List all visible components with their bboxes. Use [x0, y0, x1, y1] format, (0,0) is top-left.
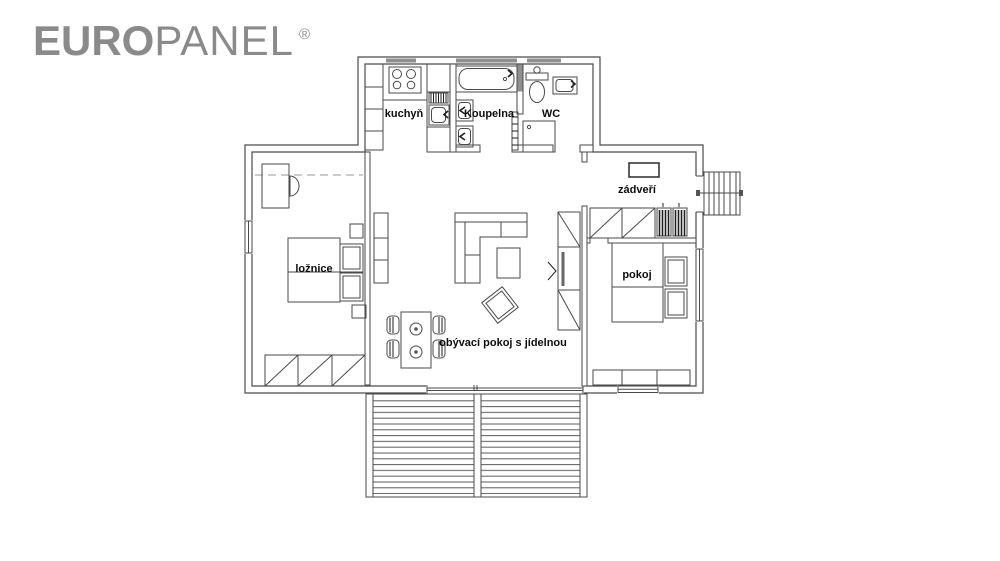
desk-chair [290, 176, 299, 196]
kitchen-window [386, 59, 416, 63]
room-south-window [617, 385, 659, 394]
hallway-wardrobe [590, 208, 655, 238]
kitchen-sink-unit [427, 92, 450, 152]
room-label-kuchyn: kuchyň [385, 108, 424, 120]
bedroom-west-window [244, 220, 253, 254]
bedroom: ložnice [255, 164, 366, 386]
coffee-table [497, 248, 520, 278]
dryer [673, 203, 687, 236]
washing-machine [657, 203, 671, 236]
nightstand [350, 224, 363, 238]
bookshelf [374, 213, 388, 283]
living-room: obývací pokoj s jídelnou [374, 212, 580, 368]
desk [262, 164, 299, 208]
terrace-post [580, 394, 587, 497]
wc-room: WC [523, 67, 577, 152]
chair [433, 316, 445, 334]
room-label-koupelna: Koupelna [464, 108, 515, 120]
double-bed [612, 243, 687, 322]
bathroom: Koupelna [456, 66, 518, 150]
bedroom-wardrobe [265, 355, 365, 386]
bathtub [456, 66, 517, 92]
room-label-zadveri: zádveří [618, 184, 657, 196]
room-label-wc: WC [542, 108, 560, 120]
room-pokoj: pokoj [593, 243, 690, 385]
armchair [482, 287, 518, 323]
room-east-window [695, 248, 704, 322]
chair [387, 340, 399, 358]
viewing-arrow [548, 262, 556, 280]
room-label-pokoj: pokoj [622, 269, 651, 281]
deck-planks [481, 397, 580, 494]
shoe-cabinet [629, 163, 659, 177]
deck-planks [373, 397, 474, 494]
kitchen: kuchyň [365, 64, 450, 152]
wc-window [527, 59, 561, 63]
tv-cabinet [548, 212, 580, 330]
bathroom-window [456, 59, 517, 63]
terrace [366, 394, 587, 497]
toilet [526, 67, 548, 103]
dish-rack [431, 94, 446, 103]
hallway: zádveří [590, 163, 687, 238]
page-canvas: EUROPANEL® [0, 0, 1000, 561]
terrace-post [366, 394, 373, 497]
stove [389, 67, 421, 93]
chair [387, 316, 399, 334]
terrace-sliding-door [426, 385, 584, 394]
desk-counter [593, 370, 690, 385]
tv-screen [562, 252, 565, 286]
room-label-obyvaci-pokoj: obývací pokoj s jídelnou [439, 337, 567, 349]
terrace-post [474, 394, 481, 497]
wc-washbasin [553, 77, 577, 94]
room-label-loznice: ložnice [295, 263, 332, 275]
dining-table [401, 312, 431, 368]
bedside-table [352, 305, 366, 318]
floor-plan: kuchyň [0, 0, 1000, 561]
washbasin [456, 126, 473, 147]
